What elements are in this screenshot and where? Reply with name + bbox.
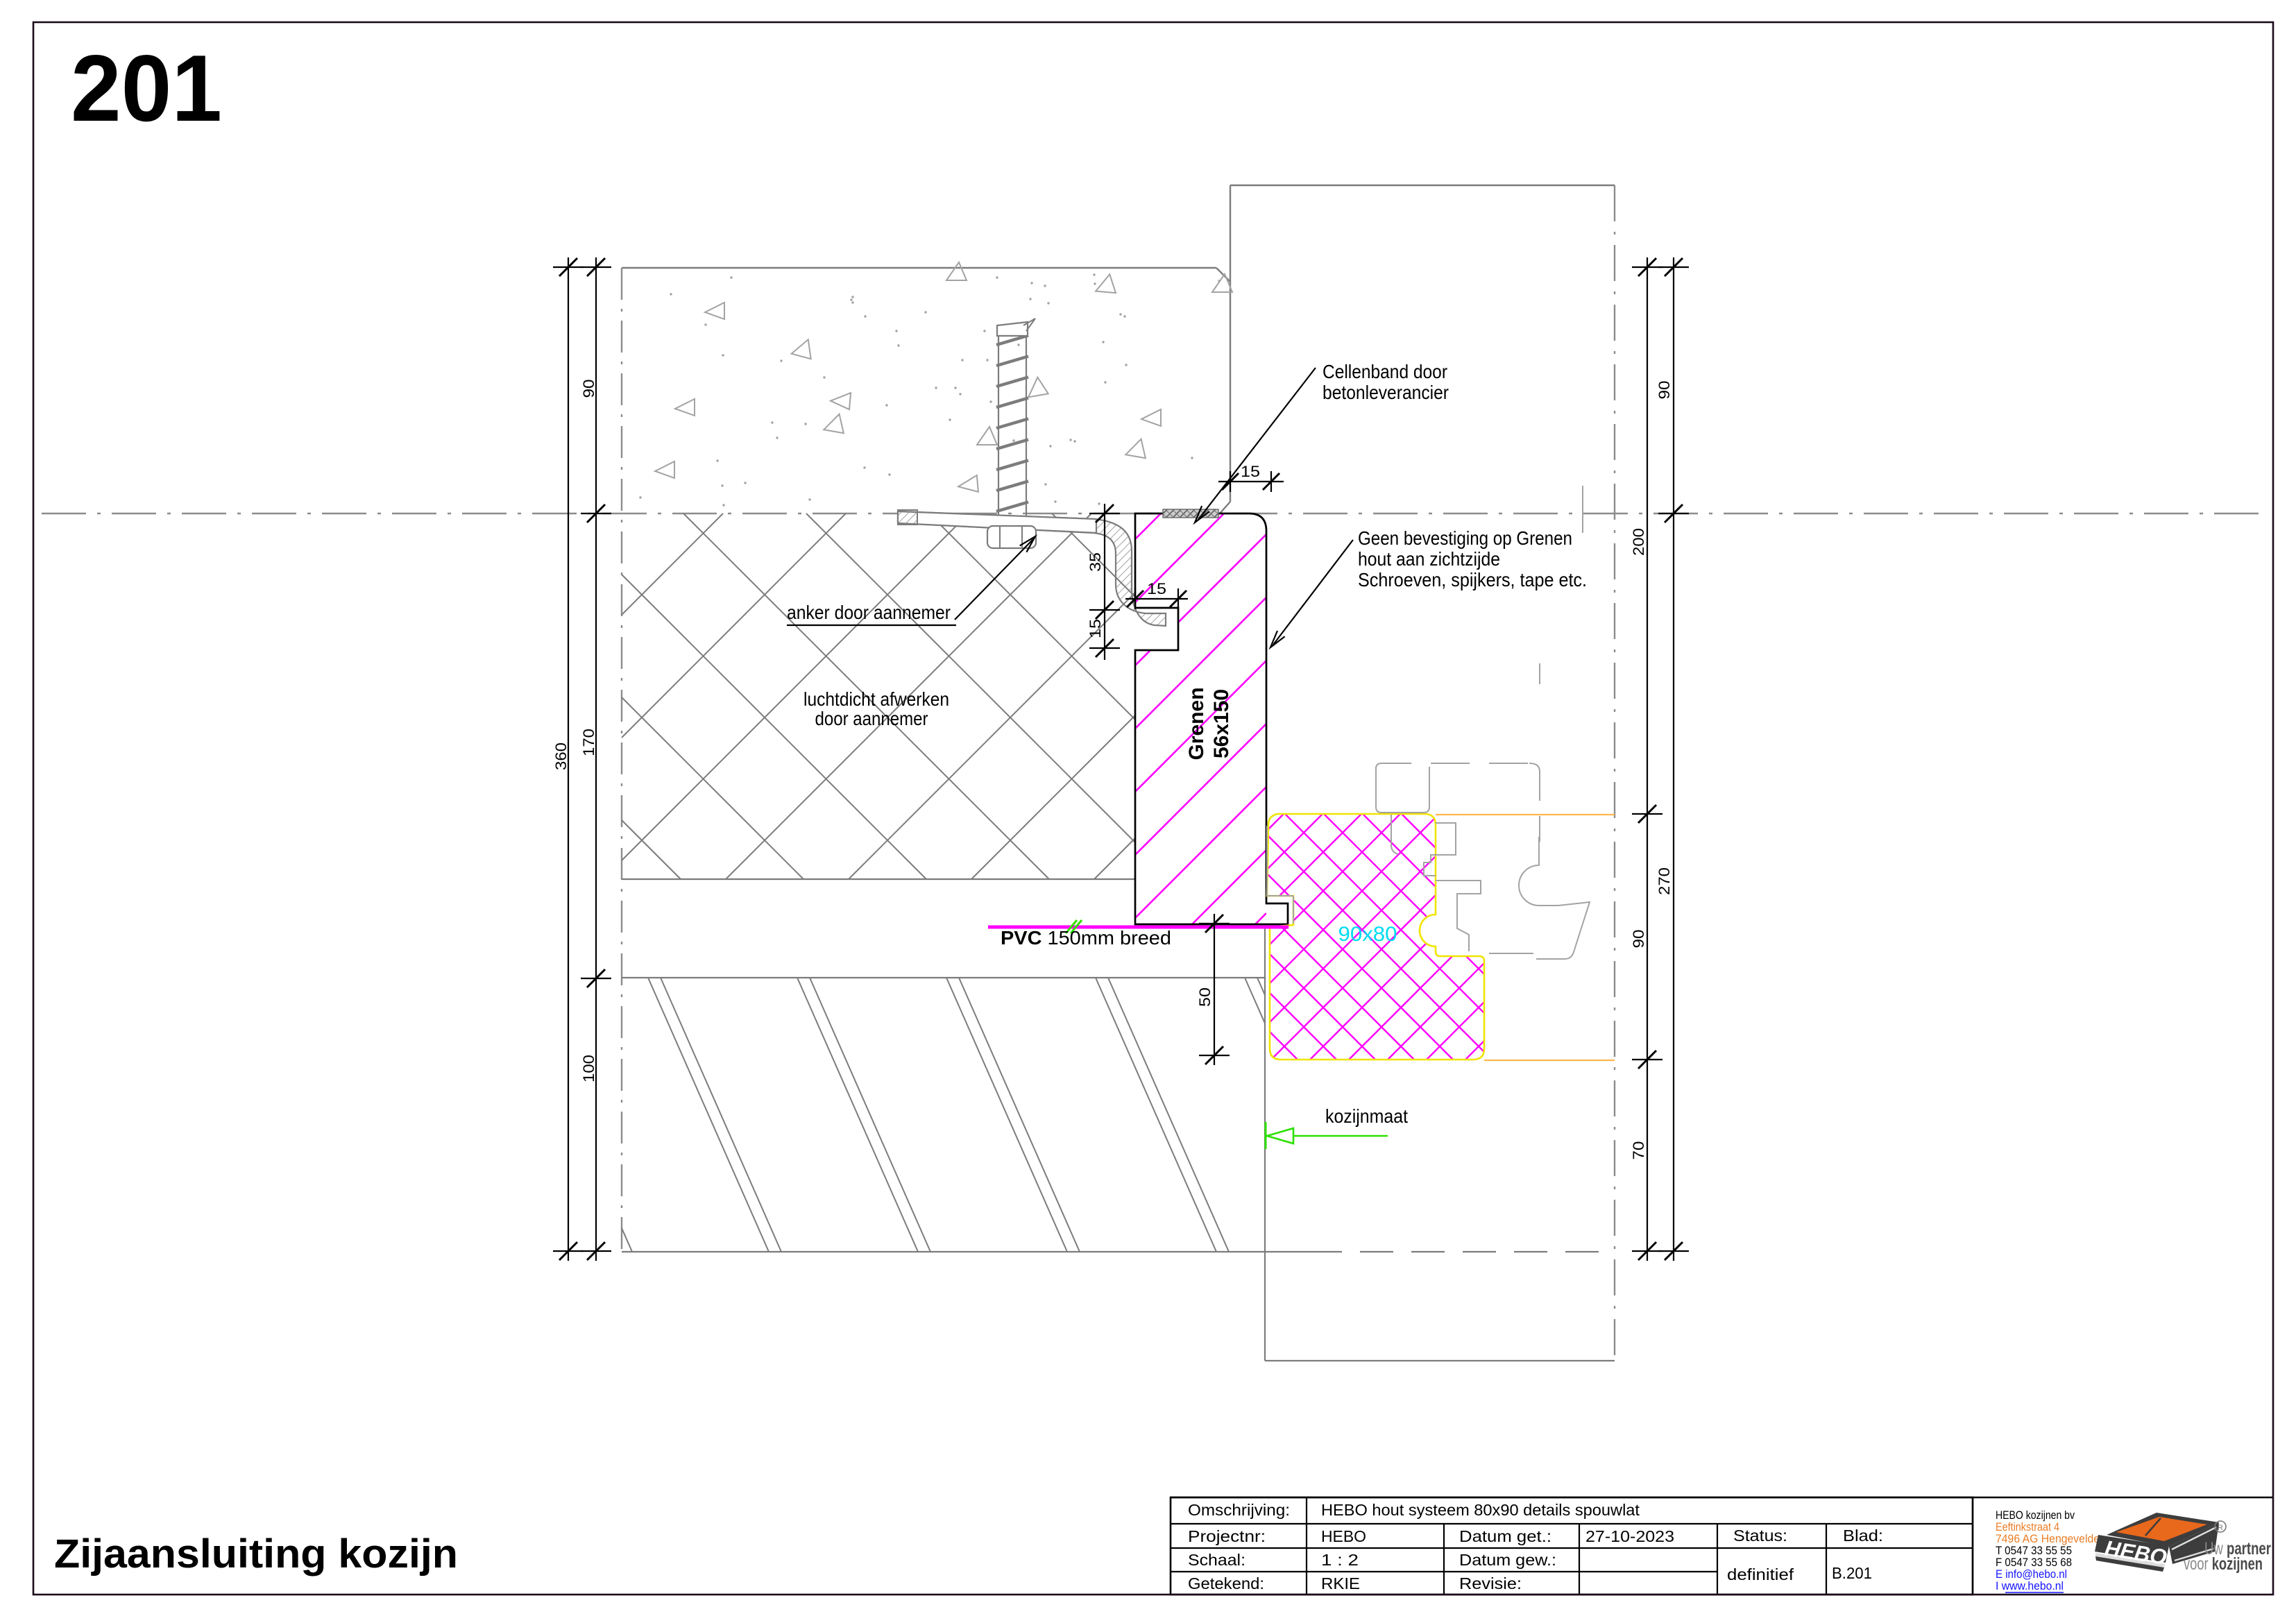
svg-text:HEBO hout systeem 80x90 detail: HEBO hout systeem 80x90 details spouwlat [1321, 1501, 1640, 1519]
svg-text:90: 90 [580, 380, 597, 398]
svg-text:hout aan zichtzijde: hout aan zichtzijde [1358, 548, 1500, 570]
svg-text:56x150: 56x150 [1210, 689, 1233, 758]
svg-text:200: 200 [1630, 528, 1647, 556]
svg-text:voor kozijnen: voor kozijnen [2184, 1554, 2263, 1574]
svg-text:R: R [2218, 1524, 2223, 1532]
svg-text:Schroeven, spijkers, tape etc.: Schroeven, spijkers, tape etc. [1358, 569, 1587, 590]
svg-text:15: 15 [1147, 580, 1166, 597]
svg-text:Omschrijving:: Omschrijving: [1188, 1501, 1290, 1519]
svg-text:270: 270 [1656, 867, 1673, 895]
svg-text:27-10-2023: 27-10-2023 [1585, 1527, 1674, 1545]
svg-text:definitief: definitief [1727, 1565, 1794, 1583]
svg-text:Datum get.:: Datum get.: [1459, 1527, 1551, 1545]
svg-text:RKIE: RKIE [1321, 1574, 1360, 1592]
svg-text:100: 100 [580, 1055, 597, 1082]
svg-text:B.201: B.201 [1832, 1564, 1872, 1582]
svg-text:50: 50 [1196, 987, 1214, 1007]
svg-text:90: 90 [1630, 930, 1647, 949]
svg-text:90: 90 [1656, 381, 1673, 400]
svg-text:I www.hebo.nl: I www.hebo.nl [1996, 1579, 2064, 1592]
svg-text:Grenen: Grenen [1185, 687, 1208, 760]
svg-text:201: 201 [71, 35, 222, 141]
svg-text:15: 15 [1241, 463, 1260, 480]
svg-text:Status:: Status: [1733, 1527, 1787, 1545]
svg-text:170: 170 [580, 729, 597, 756]
svg-text:Getekend:: Getekend: [1188, 1574, 1264, 1592]
svg-text:Schaal:: Schaal: [1188, 1551, 1245, 1569]
svg-text:90x80: 90x80 [1338, 923, 1397, 946]
svg-text:15: 15 [1087, 619, 1104, 638]
svg-text:Projectnr:: Projectnr: [1188, 1527, 1266, 1545]
svg-text:kozijnmaat: kozijnmaat [1325, 1105, 1408, 1127]
svg-text:luchtdicht afwerken: luchtdicht afwerken [803, 688, 949, 710]
svg-text:Geen bevestiging op Grenen: Geen bevestiging op Grenen [1358, 527, 1572, 549]
svg-text:HEBO: HEBO [1321, 1527, 1366, 1545]
svg-text:PVC 150mm breed: PVC 150mm breed [1001, 927, 1171, 949]
svg-text:35: 35 [1087, 552, 1104, 572]
svg-text:Revisie:: Revisie: [1459, 1574, 1522, 1592]
svg-text:door aannemer: door aannemer [815, 708, 928, 729]
svg-text:Cellenband door: Cellenband door [1323, 361, 1447, 382]
svg-text:Zijaansluiting kozijn: Zijaansluiting kozijn [54, 1531, 458, 1577]
svg-text:360: 360 [552, 742, 570, 770]
svg-text:Datum gew.:: Datum gew.: [1459, 1551, 1556, 1569]
svg-text:1 : 2: 1 : 2 [1321, 1551, 1359, 1569]
svg-text:Blad:: Blad: [1843, 1527, 1883, 1545]
svg-text:anker door aannemer: anker door aannemer [787, 602, 951, 623]
svg-text:70: 70 [1630, 1141, 1647, 1160]
svg-text:betonleverancier: betonleverancier [1323, 382, 1449, 403]
